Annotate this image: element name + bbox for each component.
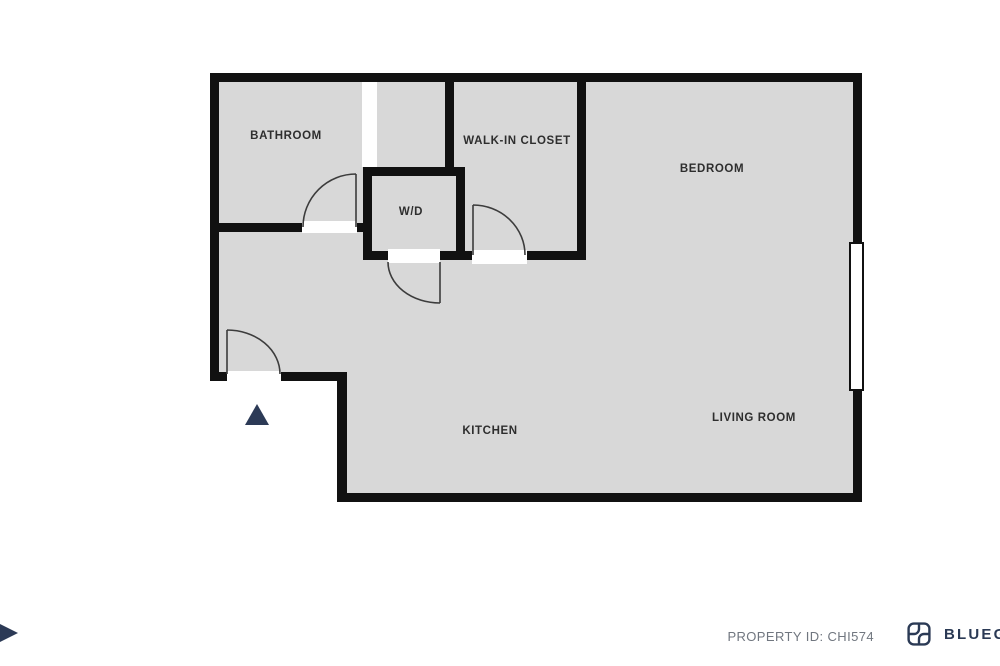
carousel-next-arrow-icon[interactable] xyxy=(0,620,18,646)
wall-top xyxy=(210,73,862,82)
living-room-label: LIVING ROOM xyxy=(712,412,796,424)
brand-logo: BLUEG xyxy=(907,622,1000,646)
door-opening-entry xyxy=(227,371,281,382)
bedroom-label: BEDROOM xyxy=(680,163,744,175)
brand-text: BLUEG xyxy=(944,626,1000,643)
window-right-wall xyxy=(849,242,864,391)
kitchen-label: KITCHEN xyxy=(462,425,517,437)
entry-arrow-icon xyxy=(245,404,269,425)
door-opening-closet xyxy=(472,250,527,264)
bathroom-label: BATHROOM xyxy=(250,130,322,142)
wall-lower-left xyxy=(337,372,347,502)
property-id-text: PROPERTY ID: CHI574 xyxy=(727,629,874,644)
blueground-logo-icon xyxy=(907,622,931,646)
wall-closet-left-upper xyxy=(445,82,454,176)
door-opening-wd xyxy=(388,249,440,263)
wall-closet-right xyxy=(577,82,586,260)
floor-area-lower xyxy=(337,381,862,502)
wall-wd-left xyxy=(363,167,372,260)
wall-wd-right xyxy=(456,167,465,260)
walk-in-closet-label: WALK-IN CLOSET xyxy=(463,135,570,147)
wd-label: W/D xyxy=(399,206,423,218)
wall-bottom xyxy=(337,493,862,502)
floorplan: BATHROOM WALK-IN CLOSET BEDROOM W/D KITC… xyxy=(0,0,1000,666)
bathroom-alcove-opening xyxy=(362,82,377,167)
door-opening-bathroom xyxy=(302,221,357,233)
